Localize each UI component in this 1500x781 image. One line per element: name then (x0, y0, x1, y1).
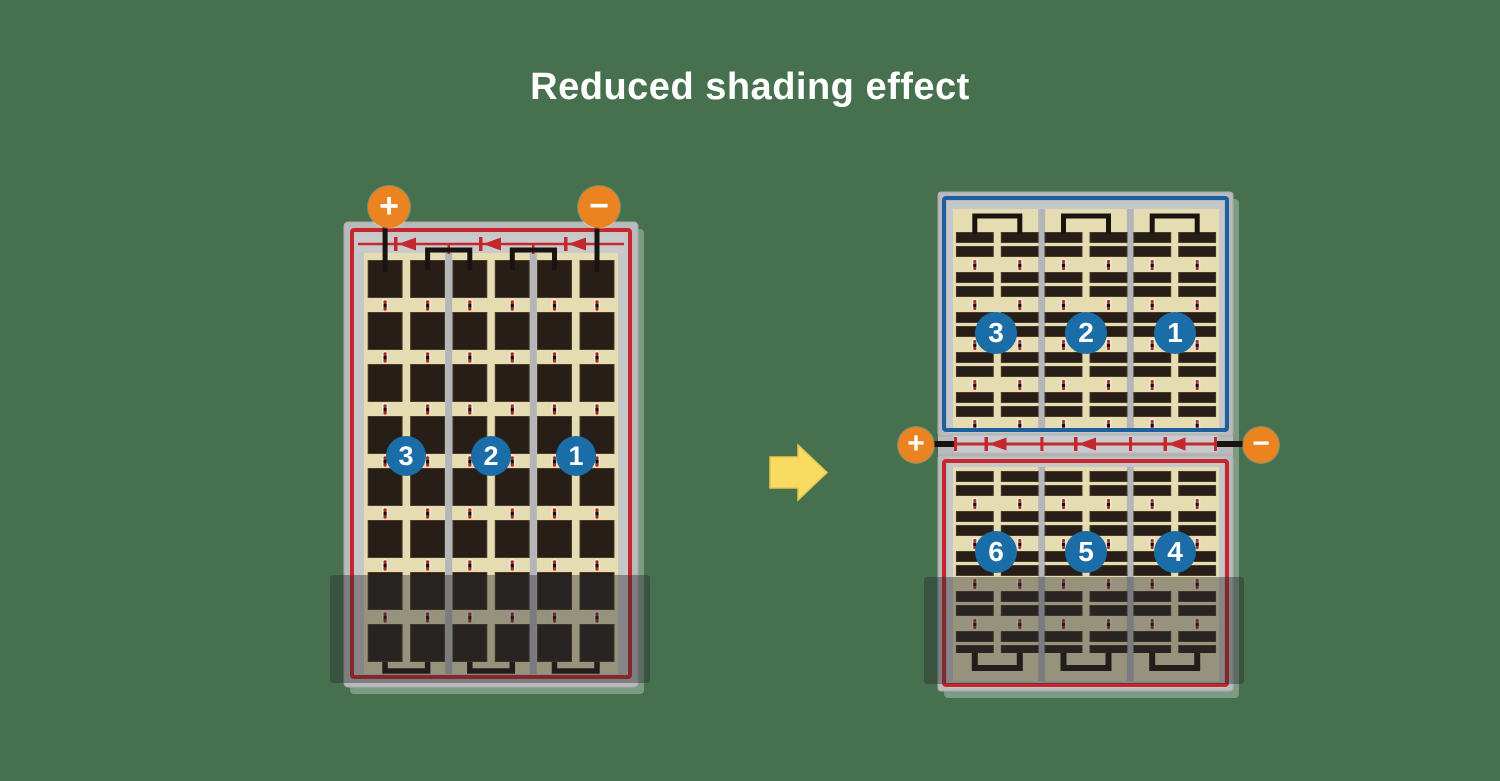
diagram: Reduced shading effect (0, 0, 1500, 781)
minus-terminal-icon: − (578, 186, 620, 228)
plus-symbol: + (379, 189, 399, 223)
minus-terminal-icon: − (1243, 427, 1279, 463)
string-number-badge: 3 (975, 312, 1017, 354)
shading-overlay (924, 577, 1244, 684)
minus-symbol: − (1252, 429, 1270, 459)
string-divider (1038, 209, 1045, 430)
plus-terminal-icon: + (368, 186, 410, 228)
negative-lead-wire (1216, 441, 1244, 447)
string-number-badge: 2 (471, 436, 511, 476)
string-number-badge: 4 (1154, 531, 1196, 573)
shading-overlay (330, 575, 650, 683)
string-number-badge: 3 (386, 436, 426, 476)
plus-symbol: + (907, 429, 925, 459)
string-number-badge: 1 (1154, 312, 1196, 354)
plus-terminal-icon: + (898, 427, 934, 463)
junction-diode-strip (930, 435, 1244, 453)
string-number-badge: 5 (1065, 531, 1107, 573)
string-number-badge: 6 (975, 531, 1017, 573)
minus-symbol: − (589, 189, 609, 223)
string-number-badge: 2 (1065, 312, 1107, 354)
string-divider (1127, 209, 1134, 430)
transform-arrow-icon (770, 445, 827, 500)
string-number-badge: 1 (556, 436, 596, 476)
diagram-graphic (0, 0, 1500, 781)
